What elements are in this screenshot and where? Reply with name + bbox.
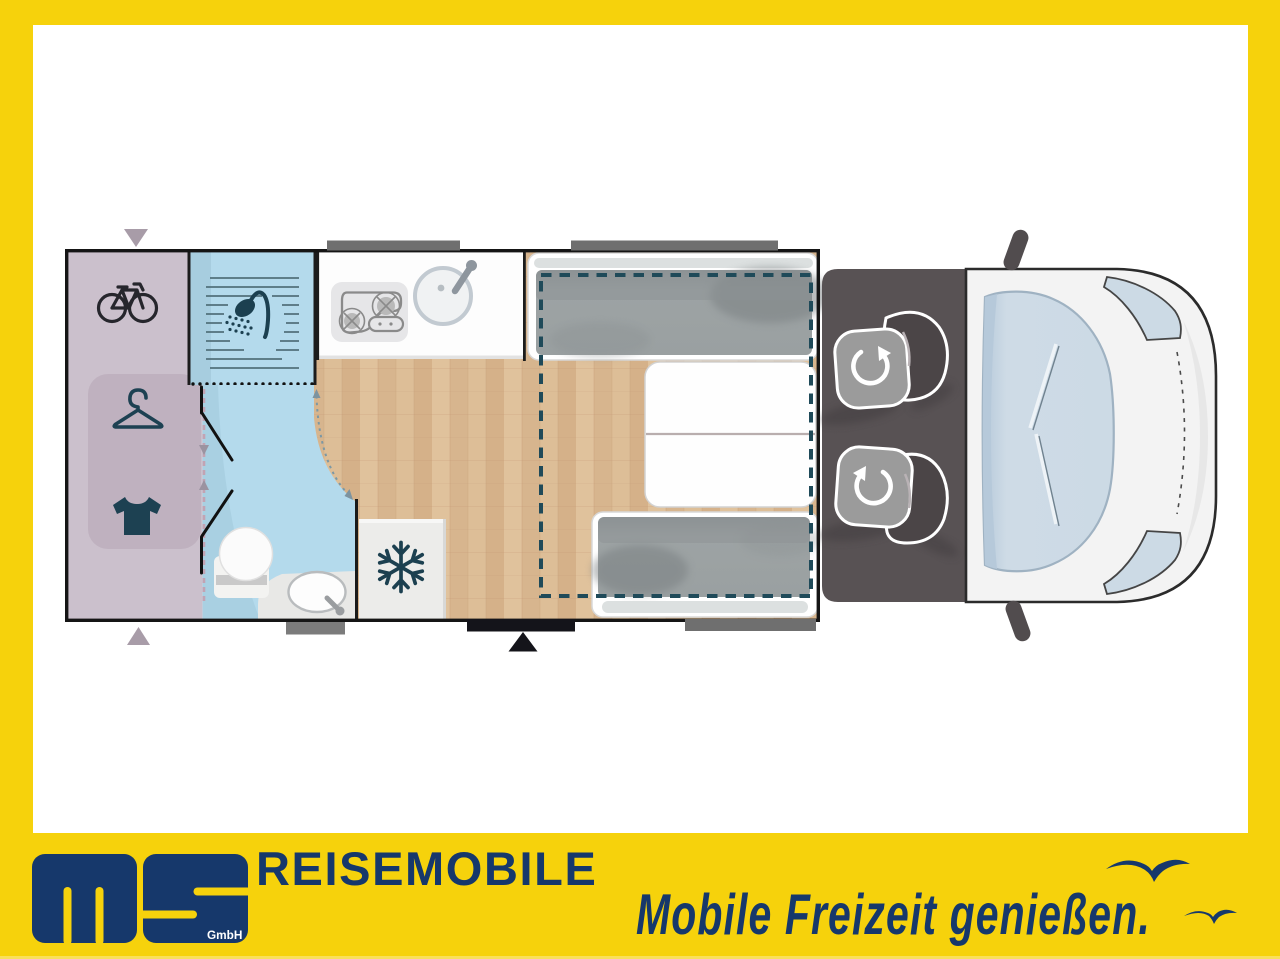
svg-text:GmbH: GmbH — [207, 928, 242, 942]
svg-text:Mobile Freizeit genießen.: Mobile Freizeit genießen. — [636, 882, 1151, 946]
svg-text:REISEMOBILE: REISEMOBILE — [256, 842, 597, 895]
